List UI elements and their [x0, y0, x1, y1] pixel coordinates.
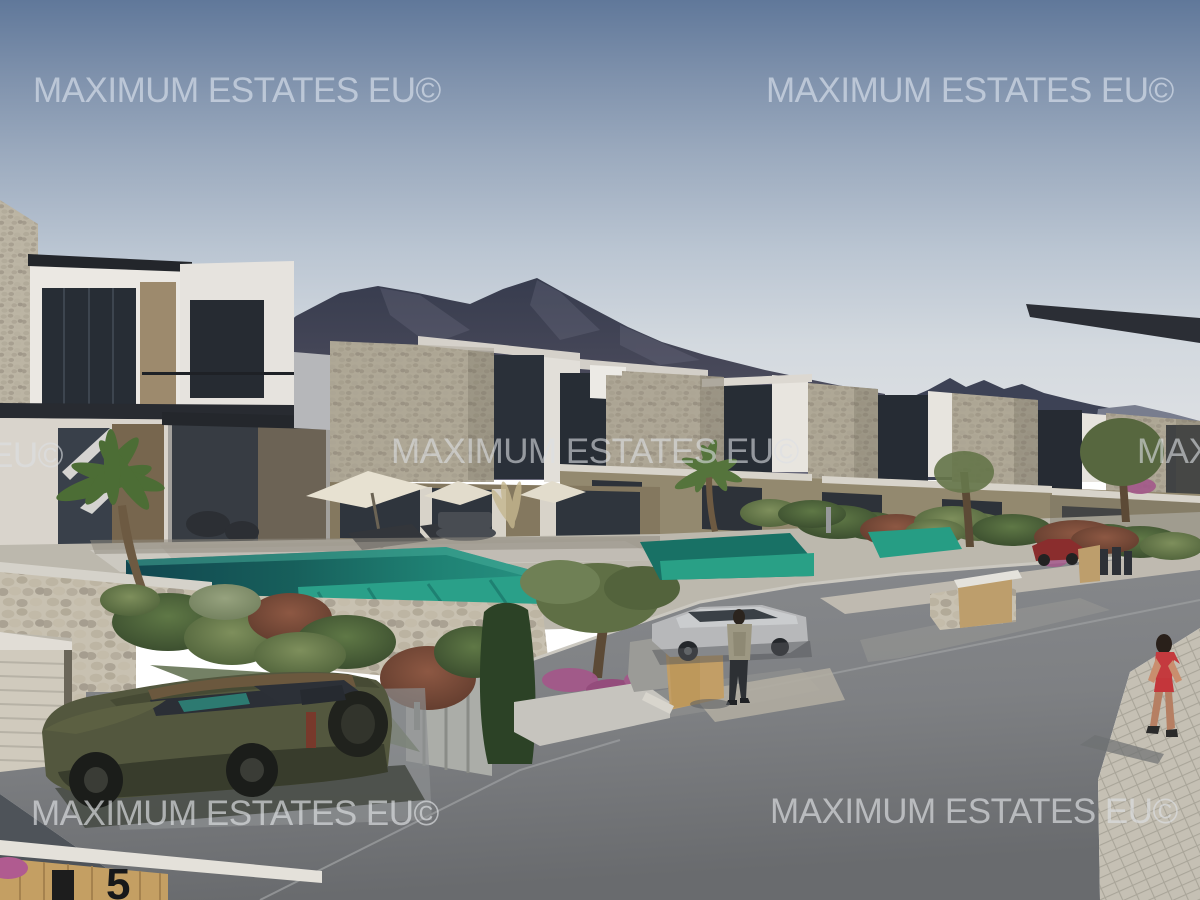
svg-text:5: 5 [106, 860, 130, 900]
svg-text:MAXIMUM ESTATES EU©: MAXIMUM ESTATES EU© [31, 794, 440, 833]
svg-text:MAXIMUM ESTATES EU©: MAXIMUM ESTATES EU© [770, 792, 1179, 831]
svg-text:MAXIMUM ESTATES EU©: MAXIMUM ESTATES EU© [766, 71, 1175, 110]
svg-text:MAXIM: MAXIM [1137, 432, 1200, 471]
svg-text:EU©: EU© [0, 436, 64, 475]
svg-text:MAXIMUM ESTATES EU©: MAXIMUM ESTATES EU© [33, 71, 442, 110]
svg-text:MAXIMUM ESTATES EU©: MAXIMUM ESTATES EU© [391, 432, 800, 471]
